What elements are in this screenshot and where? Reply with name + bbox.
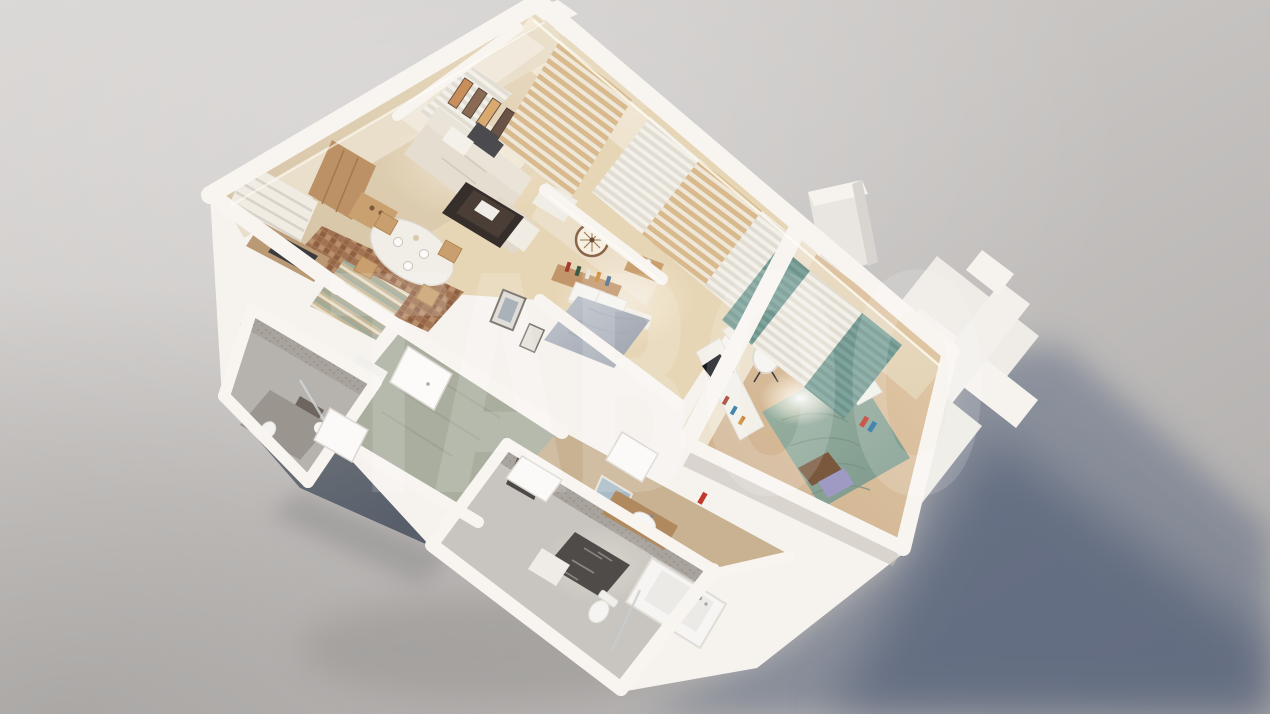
render-canvas: TABOO [0,0,1270,714]
watermark-text: TABOO [330,214,990,563]
apartment-render: TABOO [0,0,1270,714]
